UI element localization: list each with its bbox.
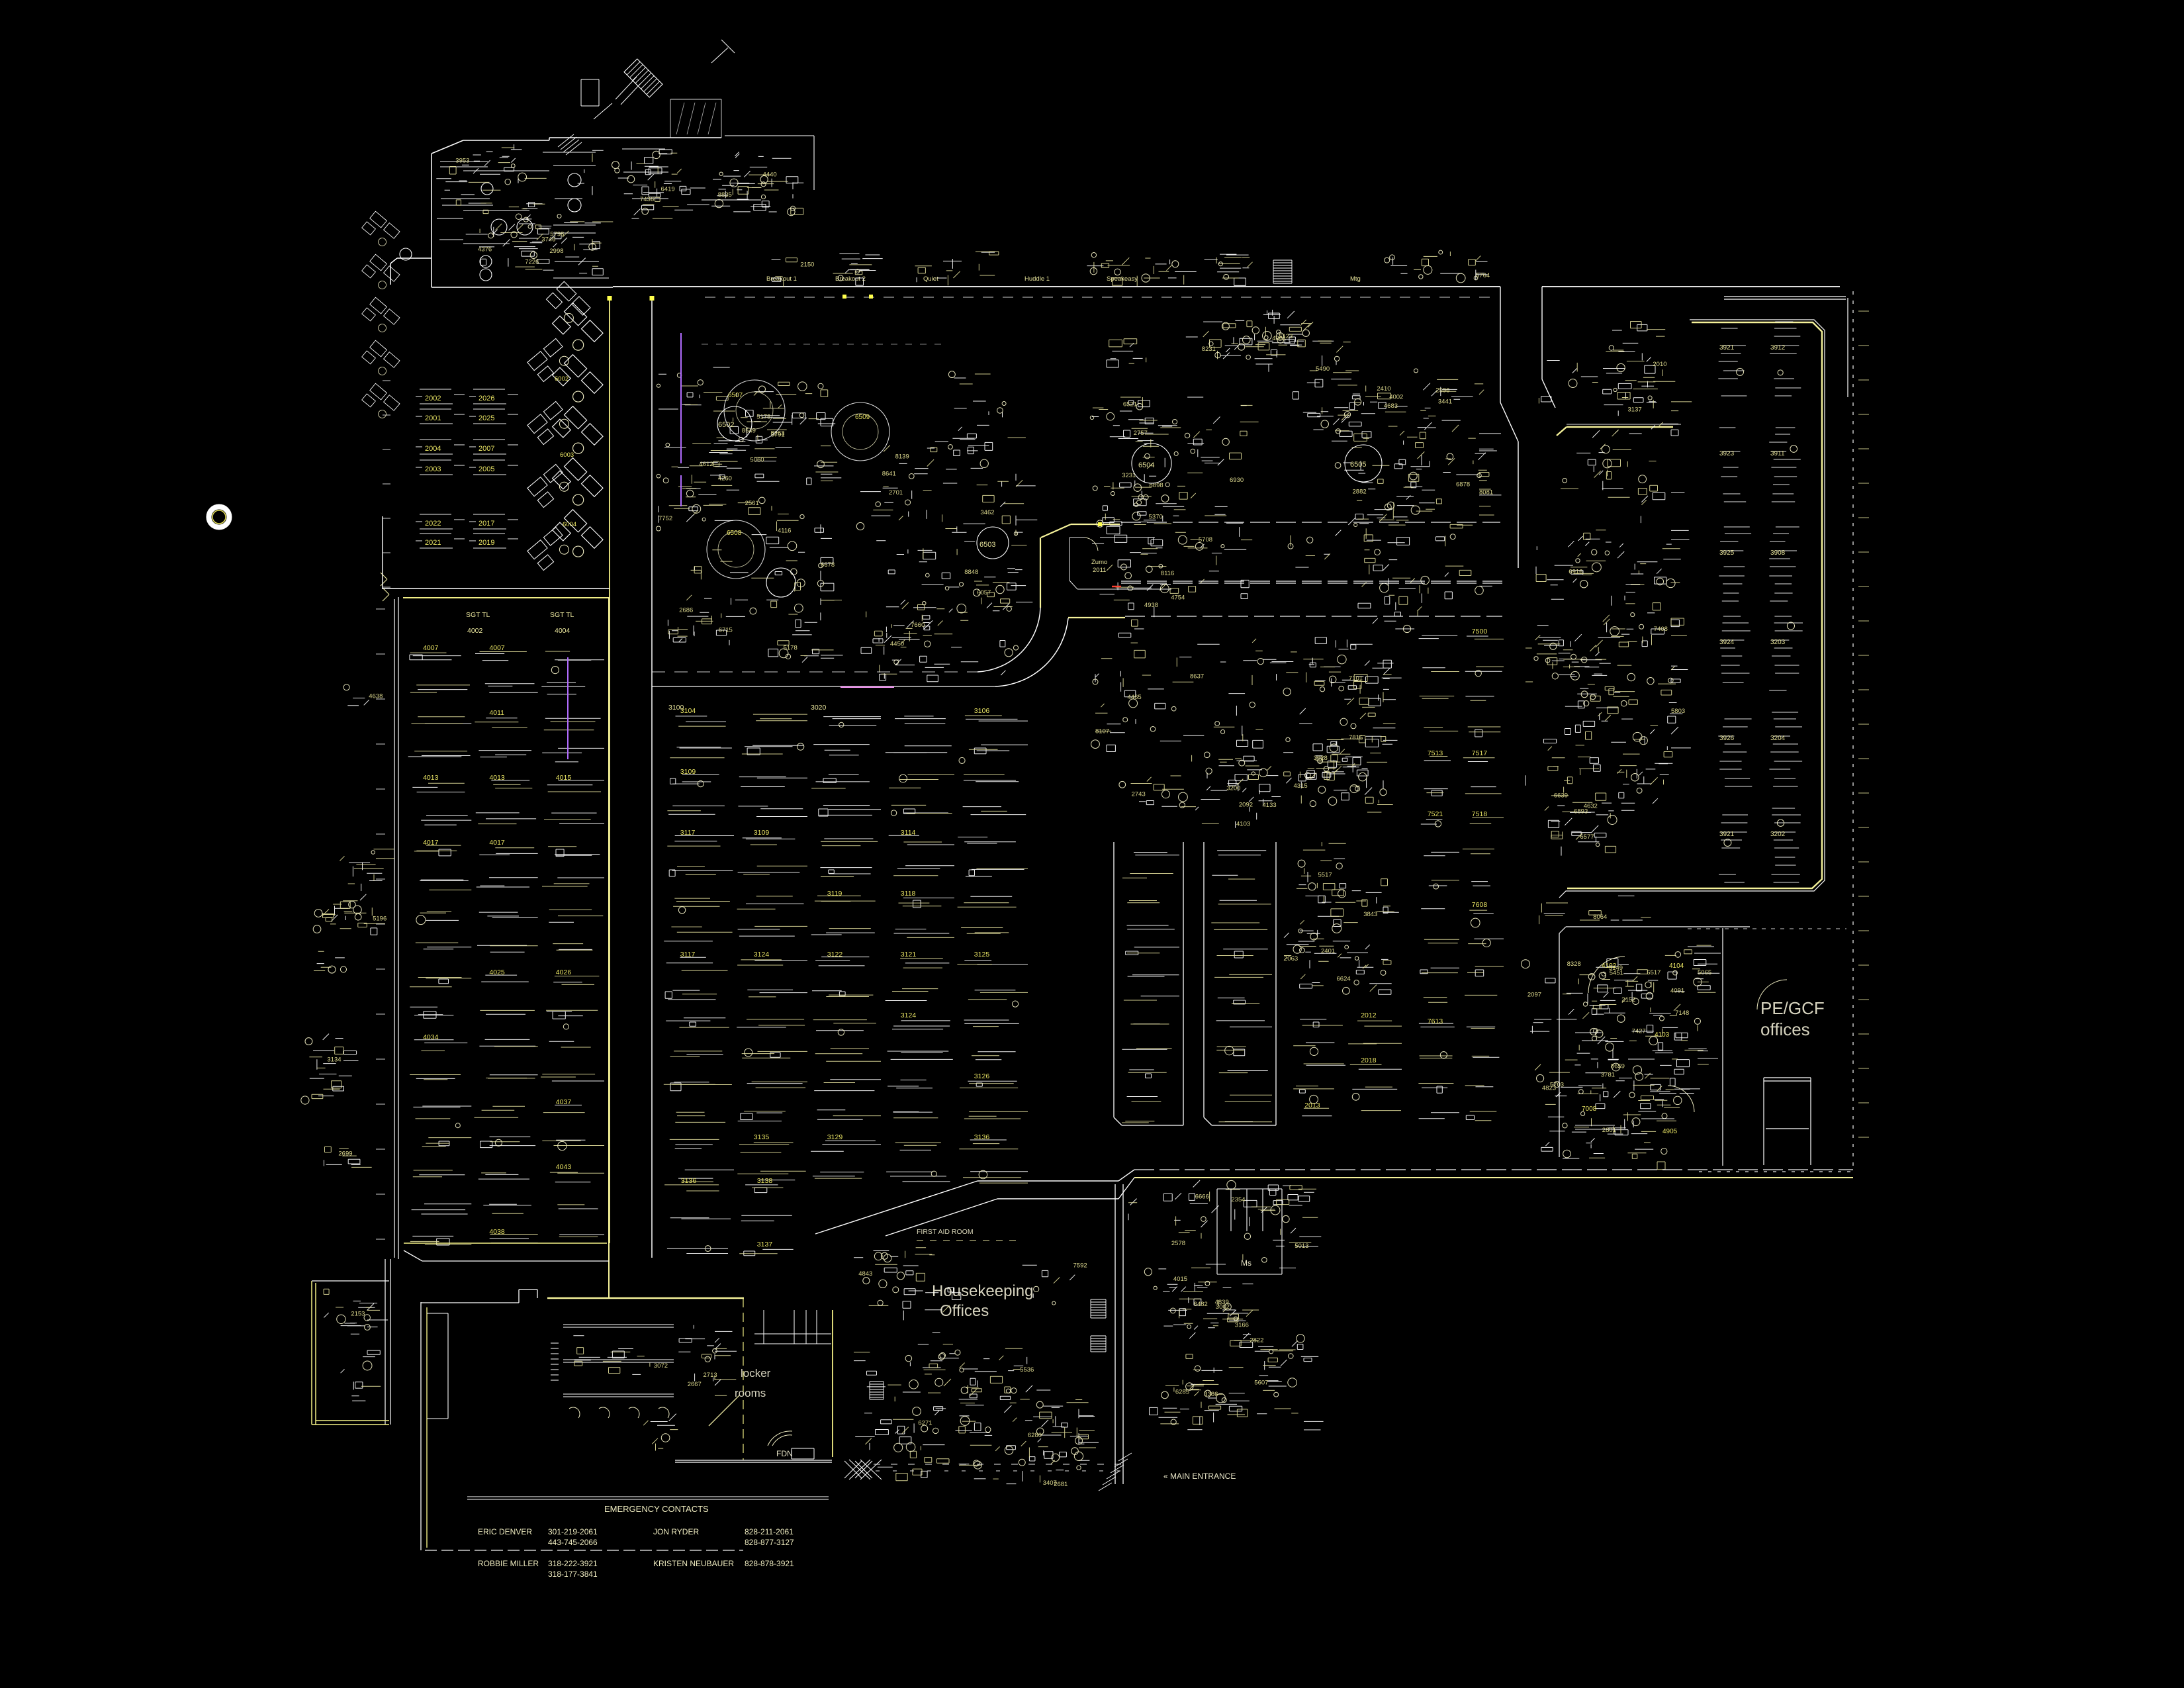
svg-text:4103: 4103 (1655, 1031, 1670, 1039)
svg-text:Mtg: Mtg (1350, 275, 1361, 283)
svg-text:4938: 4938 (1144, 602, 1158, 609)
svg-text:8659: 8659 (1611, 1062, 1625, 1070)
svg-text:4754: 4754 (1171, 594, 1185, 601)
svg-text:6419: 6419 (661, 185, 675, 193)
svg-text:8139: 8139 (895, 453, 909, 461)
svg-text:7752: 7752 (659, 515, 672, 522)
svg-text:7608: 7608 (1472, 901, 1488, 909)
svg-text:3129: 3129 (827, 1133, 843, 1141)
svg-text:7408: 7408 (1654, 626, 1668, 633)
svg-text:5764: 5764 (1476, 272, 1490, 279)
svg-text:4905: 4905 (1662, 1128, 1678, 1135)
svg-text:3912: 3912 (1770, 344, 1786, 352)
svg-text:3231: 3231 (1122, 472, 1136, 479)
svg-text:3462: 3462 (980, 509, 994, 516)
svg-text:4104: 4104 (1669, 962, 1684, 970)
svg-text:6521: 6521 (1123, 400, 1137, 408)
svg-text:Offices: Offices (940, 1302, 989, 1320)
svg-text:FDN: FDN (776, 1449, 793, 1458)
svg-text:3137: 3137 (1628, 406, 1642, 414)
svg-text:3925: 3925 (1719, 549, 1735, 557)
svg-text:6715: 6715 (719, 626, 733, 633)
svg-text:3166: 3166 (1235, 1321, 1249, 1329)
svg-text:2401: 2401 (1321, 948, 1335, 955)
svg-text:3109: 3109 (754, 829, 770, 837)
svg-text:2012: 2012 (1361, 1011, 1377, 1019)
svg-text:7008: 7008 (1582, 1105, 1597, 1113)
svg-text:5013: 5013 (1295, 1243, 1308, 1250)
svg-text:offices: offices (1760, 1019, 1810, 1039)
svg-text:Housekeeping: Housekeeping (932, 1282, 1033, 1300)
svg-text:4004: 4004 (555, 627, 570, 635)
svg-text:5536: 5536 (1020, 1366, 1034, 1374)
svg-text:2150: 2150 (800, 261, 814, 268)
svg-text:3924: 3924 (1719, 639, 1735, 646)
svg-text:2011: 2011 (1093, 567, 1106, 574)
svg-text:828-211-2061: 828-211-2061 (745, 1527, 794, 1536)
svg-text:4612: 4612 (699, 461, 713, 468)
svg-text:3441: 3441 (1438, 399, 1452, 406)
svg-text:EMERGENCY CONTACTS: EMERGENCY CONTACTS (604, 1504, 709, 1514)
svg-text:4034: 4034 (423, 1033, 439, 1041)
svg-text:3125: 3125 (974, 951, 990, 959)
svg-text:2022: 2022 (425, 520, 441, 528)
svg-text:3202: 3202 (1770, 831, 1786, 838)
svg-text:3926: 3926 (1719, 735, 1735, 742)
svg-text:6004: 6004 (563, 521, 576, 528)
svg-text:2013: 2013 (1304, 1102, 1320, 1109)
svg-text:8231: 8231 (1202, 346, 1216, 353)
svg-text:rooms: rooms (735, 1387, 766, 1399)
svg-text:3124: 3124 (754, 951, 770, 959)
svg-text:4839: 4839 (1215, 1299, 1229, 1306)
svg-text:6509: 6509 (855, 414, 870, 421)
svg-text:2667: 2667 (688, 1381, 702, 1388)
svg-text:3953: 3953 (455, 157, 469, 164)
svg-text:ROBBIE MILLER: ROBBIE MILLER (478, 1559, 539, 1568)
svg-text:443-745-2066: 443-745-2066 (548, 1538, 598, 1547)
svg-text:PE/GCF: PE/GCF (1760, 998, 1825, 1018)
svg-text:SGT TL: SGT TL (466, 611, 490, 619)
svg-text:2822: 2822 (1250, 1337, 1263, 1344)
svg-text:2801: 2801 (1602, 1127, 1616, 1134)
svg-text:2019: 2019 (478, 539, 494, 547)
svg-text:2092: 2092 (1239, 802, 1253, 809)
svg-text:2998: 2998 (549, 248, 563, 255)
svg-text:8848: 8848 (964, 569, 978, 576)
svg-text:7226: 7226 (525, 258, 539, 265)
svg-text:7148: 7148 (1675, 1009, 1689, 1017)
svg-text:5123: 5123 (1279, 333, 1293, 340)
svg-text:2757: 2757 (1134, 430, 1148, 437)
svg-text:2004: 2004 (425, 445, 441, 453)
svg-text:2882: 2882 (1353, 488, 1367, 495)
svg-text:2596: 2596 (1435, 387, 1449, 394)
svg-text:8107: 8107 (1095, 727, 1109, 735)
svg-text:7101: 7101 (1349, 675, 1363, 682)
svg-text:2701: 2701 (889, 489, 903, 496)
svg-text:4002: 4002 (467, 627, 483, 635)
svg-text:6505: 6505 (1350, 461, 1366, 469)
svg-text:3136: 3136 (681, 1177, 697, 1185)
svg-text:318-177-3841: 318-177-3841 (548, 1570, 598, 1579)
svg-text:7513: 7513 (1428, 749, 1443, 757)
svg-text:2354: 2354 (1231, 1196, 1245, 1203)
svg-text:6002: 6002 (555, 375, 569, 383)
svg-text:318-222-3921: 318-222-3921 (548, 1559, 598, 1568)
svg-text:8835: 8835 (718, 191, 732, 199)
svg-text:4376: 4376 (478, 246, 492, 253)
svg-text:5178: 5178 (756, 414, 770, 421)
svg-text:6639: 6639 (1554, 792, 1568, 799)
svg-text:4632: 4632 (1584, 803, 1598, 810)
svg-text:4007: 4007 (489, 644, 505, 652)
svg-text:4026: 4026 (556, 968, 572, 976)
svg-text:4013: 4013 (489, 774, 505, 782)
svg-text:7500: 7500 (1472, 628, 1488, 635)
svg-text:4017: 4017 (489, 839, 505, 847)
svg-text:4260: 4260 (718, 475, 732, 482)
svg-text:4002: 4002 (1389, 394, 1403, 401)
svg-text:4102: 4102 (1602, 962, 1617, 970)
svg-text:5451: 5451 (1610, 969, 1623, 976)
svg-text:3136: 3136 (974, 1133, 990, 1141)
svg-text:4015: 4015 (1173, 1276, 1187, 1283)
svg-text:2025: 2025 (478, 414, 494, 422)
svg-text:7816: 7816 (1349, 734, 1363, 741)
svg-text:5517: 5517 (1318, 871, 1332, 878)
svg-text:4037: 4037 (556, 1098, 572, 1106)
svg-text:3109: 3109 (680, 768, 696, 776)
svg-text:FIRST AID ROOM: FIRST AID ROOM (917, 1228, 974, 1236)
svg-text:828-878-3921: 828-878-3921 (745, 1559, 794, 1568)
svg-text:3407: 3407 (1043, 1479, 1057, 1487)
svg-text:4103: 4103 (1236, 821, 1250, 828)
svg-text:3072: 3072 (654, 1362, 668, 1370)
svg-text:6504: 6504 (1138, 461, 1154, 469)
svg-text:4440: 4440 (763, 171, 777, 179)
svg-text:6678: 6678 (821, 561, 835, 569)
svg-text:3100: 3100 (668, 704, 684, 712)
svg-text:2699: 2699 (338, 1150, 352, 1158)
svg-text:3028: 3028 (1314, 755, 1328, 762)
svg-text:5798: 5798 (550, 231, 564, 238)
svg-text:5708: 5708 (1199, 536, 1212, 543)
svg-text:8641: 8641 (882, 471, 896, 478)
svg-text:6666: 6666 (1195, 1194, 1209, 1201)
svg-text:5607: 5607 (1254, 1379, 1268, 1386)
svg-text:5370: 5370 (1149, 513, 1163, 520)
svg-text:3204: 3204 (1770, 735, 1786, 742)
svg-text:8081: 8081 (1479, 489, 1493, 496)
svg-text:2410: 2410 (1377, 385, 1390, 393)
svg-text:8064: 8064 (1593, 914, 1607, 921)
svg-text:6003: 6003 (560, 451, 574, 459)
svg-text:4450: 4450 (890, 641, 904, 648)
svg-text:7613: 7613 (1428, 1017, 1443, 1025)
svg-text:Ms: Ms (1241, 1258, 1251, 1268)
svg-text:5490: 5490 (1316, 365, 1330, 373)
svg-text:ERIC DENVER: ERIC DENVER (478, 1527, 532, 1536)
svg-text:3126: 3126 (974, 1072, 990, 1080)
svg-text:locker: locker (741, 1367, 771, 1380)
svg-text:2153: 2153 (351, 1310, 365, 1317)
svg-text:3020: 3020 (811, 704, 827, 712)
svg-text:3121: 3121 (901, 951, 917, 959)
svg-text:3118: 3118 (901, 890, 916, 898)
svg-text:2018: 2018 (1361, 1056, 1377, 1064)
svg-text:7660: 7660 (911, 622, 925, 629)
svg-text:4091: 4091 (1670, 988, 1684, 995)
svg-text:JON RYDER: JON RYDER (653, 1527, 699, 1536)
svg-text:6624: 6624 (1337, 975, 1351, 982)
svg-text:5060: 5060 (750, 457, 764, 464)
svg-text:3124: 3124 (901, 1011, 917, 1019)
svg-text:2578: 2578 (1171, 1240, 1185, 1247)
svg-text:3923: 3923 (1719, 450, 1735, 457)
svg-text:2005: 2005 (478, 465, 494, 473)
svg-text:8263: 8263 (770, 430, 784, 438)
svg-text:2003: 2003 (425, 465, 441, 473)
svg-text:3200: 3200 (1226, 785, 1240, 792)
svg-text:4683: 4683 (1384, 402, 1398, 410)
svg-text:301-219-2061: 301-219-2061 (548, 1527, 598, 1536)
svg-text:Zumo: Zumo (1091, 559, 1107, 566)
svg-text:5065: 5065 (1698, 969, 1711, 976)
svg-text:6577: 6577 (1580, 833, 1594, 841)
svg-text:3117: 3117 (680, 951, 696, 959)
svg-text:6285: 6285 (1175, 1389, 1189, 1396)
svg-text:4013: 4013 (423, 774, 439, 782)
svg-text:3781: 3781 (1601, 1071, 1615, 1078)
svg-text:6503: 6503 (979, 541, 995, 549)
svg-text:« MAIN ENTRANCE: « MAIN ENTRANCE (1163, 1472, 1236, 1481)
svg-text:3843: 3843 (1363, 911, 1377, 918)
svg-text:7592: 7592 (1073, 1262, 1087, 1270)
svg-text:2063: 2063 (1284, 955, 1298, 962)
svg-text:6878: 6878 (1456, 481, 1470, 489)
svg-text:3137: 3137 (757, 1241, 773, 1248)
svg-text:8116: 8116 (1161, 570, 1174, 577)
svg-text:Breakout 2: Breakout 2 (835, 275, 866, 283)
svg-text:4017: 4017 (423, 839, 439, 847)
svg-text:4133: 4133 (1263, 802, 1277, 809)
svg-text:7521: 7521 (1428, 810, 1443, 818)
svg-text:2021: 2021 (425, 539, 441, 547)
svg-text:7517: 7517 (1472, 749, 1488, 757)
svg-text:4025: 4025 (489, 968, 505, 976)
svg-text:2152: 2152 (1621, 996, 1635, 1004)
svg-text:2010: 2010 (1653, 361, 1666, 368)
svg-text:5517: 5517 (1647, 969, 1661, 976)
svg-text:2713: 2713 (704, 1372, 717, 1379)
svg-text:4007: 4007 (423, 644, 439, 652)
svg-text:7518: 7518 (1472, 810, 1488, 818)
svg-text:4843: 4843 (858, 1270, 872, 1278)
svg-text:4116: 4116 (778, 528, 791, 535)
svg-text:3921: 3921 (1719, 344, 1735, 352)
svg-text:828-877-3127: 828-877-3127 (745, 1538, 794, 1547)
svg-text:6271: 6271 (918, 1420, 932, 1427)
svg-text:3135: 3135 (754, 1133, 770, 1141)
svg-text:5178: 5178 (784, 645, 797, 652)
svg-text:3106: 3106 (974, 707, 990, 715)
svg-text:3134: 3134 (327, 1056, 341, 1064)
svg-text:3117: 3117 (680, 829, 696, 837)
svg-text:3911: 3911 (1770, 450, 1785, 457)
svg-text:3386: 3386 (1204, 1391, 1218, 1398)
svg-text:3908: 3908 (1770, 549, 1786, 557)
svg-text:2017: 2017 (478, 520, 494, 528)
svg-text:6507: 6507 (728, 392, 743, 399)
svg-text:2007: 2007 (478, 445, 494, 453)
svg-text:6482: 6482 (1194, 1301, 1208, 1308)
svg-text:3921: 3921 (1719, 831, 1735, 838)
svg-text:Huddle 1: Huddle 1 (1024, 275, 1050, 283)
svg-text:6916: 6916 (1569, 568, 1582, 575)
svg-text:7436: 7436 (640, 196, 654, 203)
svg-text:2561: 2561 (745, 500, 759, 507)
svg-text:3119: 3119 (827, 890, 842, 898)
svg-text:6508: 6508 (727, 530, 742, 537)
svg-text:KRISTEN NEUBAUER: KRISTEN NEUBAUER (653, 1559, 734, 1568)
svg-text:2686: 2686 (679, 607, 693, 614)
svg-text:4043: 4043 (556, 1163, 572, 1171)
svg-text:SGT TL: SGT TL (550, 611, 574, 619)
svg-text:3114: 3114 (901, 829, 916, 837)
svg-text:6930: 6930 (1230, 477, 1244, 484)
svg-text:8637: 8637 (1190, 673, 1204, 680)
svg-text:2097: 2097 (1527, 992, 1541, 999)
svg-text:6280: 6280 (1028, 1432, 1042, 1439)
svg-text:2743: 2743 (1132, 790, 1146, 798)
svg-text:4038: 4038 (489, 1228, 505, 1236)
svg-text:4015: 4015 (556, 774, 572, 782)
svg-text:3122: 3122 (827, 951, 843, 959)
svg-text:2001: 2001 (425, 414, 441, 422)
svg-text:4315: 4315 (1294, 782, 1308, 790)
svg-text:3138: 3138 (757, 1177, 773, 1185)
svg-text:5196: 5196 (373, 915, 387, 922)
svg-text:3203: 3203 (1770, 639, 1786, 646)
svg-text:2002: 2002 (425, 395, 441, 402)
svg-text:5803: 5803 (1671, 708, 1685, 715)
svg-text:4011: 4011 (489, 709, 504, 717)
svg-text:8328: 8328 (1567, 961, 1581, 968)
svg-text:4465: 4465 (1128, 694, 1142, 701)
svg-text:Quiet: Quiet (923, 275, 938, 283)
svg-text:4823: 4823 (1542, 1085, 1556, 1092)
svg-text:2026: 2026 (478, 395, 494, 402)
svg-text:6057: 6057 (977, 589, 991, 596)
